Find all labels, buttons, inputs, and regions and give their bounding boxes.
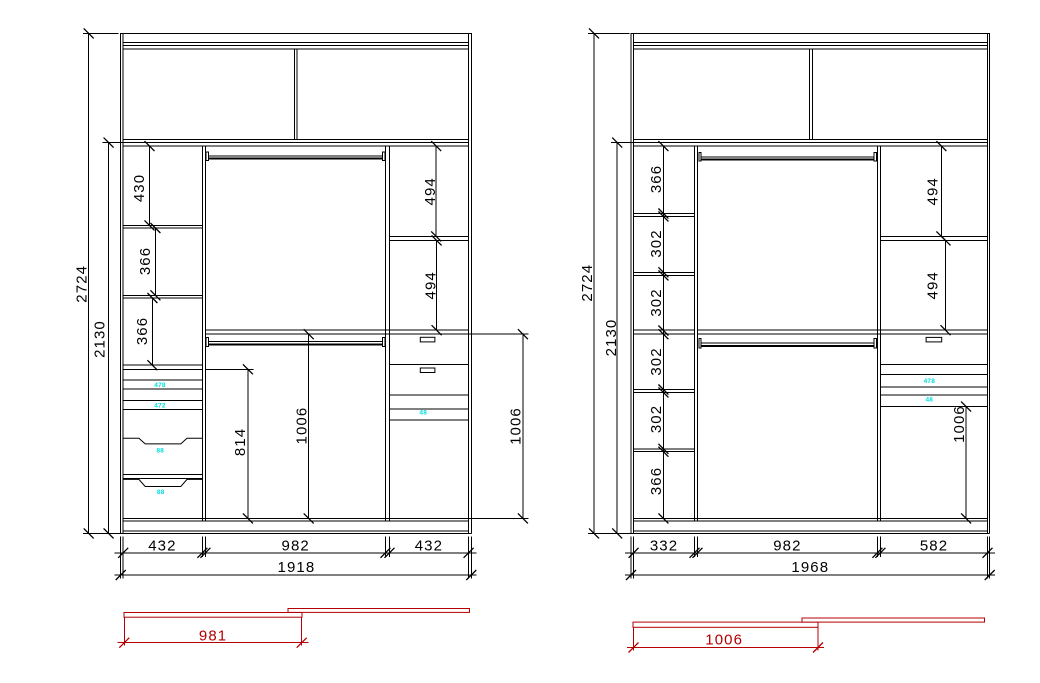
svg-text:1006: 1006 xyxy=(508,407,525,445)
svg-text:478: 478 xyxy=(924,378,936,385)
svg-text:478: 478 xyxy=(154,382,166,389)
svg-text:432: 432 xyxy=(148,538,176,555)
svg-text:48: 48 xyxy=(419,410,427,417)
svg-text:494: 494 xyxy=(924,271,941,299)
svg-text:366: 366 xyxy=(648,467,665,495)
svg-text:981: 981 xyxy=(199,627,227,644)
svg-text:1006: 1006 xyxy=(705,632,743,649)
svg-text:582: 582 xyxy=(920,538,948,555)
svg-text:430: 430 xyxy=(131,174,148,202)
svg-text:88: 88 xyxy=(157,489,165,496)
svg-text:2724: 2724 xyxy=(73,265,90,303)
svg-text:494: 494 xyxy=(924,177,941,205)
svg-text:48: 48 xyxy=(925,397,933,404)
svg-text:1918: 1918 xyxy=(278,559,316,576)
svg-text:366: 366 xyxy=(134,317,151,345)
svg-text:472: 472 xyxy=(154,402,166,409)
svg-text:366: 366 xyxy=(648,165,665,193)
svg-text:1006: 1006 xyxy=(951,405,968,443)
svg-text:2130: 2130 xyxy=(91,320,108,358)
svg-text:88: 88 xyxy=(156,447,164,454)
svg-text:1006: 1006 xyxy=(294,407,311,445)
svg-text:494: 494 xyxy=(422,271,439,299)
svg-text:494: 494 xyxy=(422,177,439,205)
svg-text:332: 332 xyxy=(650,538,678,555)
svg-text:982: 982 xyxy=(773,538,801,555)
svg-text:302: 302 xyxy=(648,405,665,433)
svg-text:432: 432 xyxy=(415,538,443,555)
svg-text:982: 982 xyxy=(282,538,310,555)
svg-text:302: 302 xyxy=(648,347,665,375)
svg-text:2724: 2724 xyxy=(579,264,596,302)
svg-text:814: 814 xyxy=(232,428,249,456)
svg-text:366: 366 xyxy=(137,247,154,275)
svg-text:2130: 2130 xyxy=(603,319,620,357)
svg-text:302: 302 xyxy=(648,229,665,257)
svg-text:1968: 1968 xyxy=(791,559,829,576)
svg-text:302: 302 xyxy=(648,288,665,316)
